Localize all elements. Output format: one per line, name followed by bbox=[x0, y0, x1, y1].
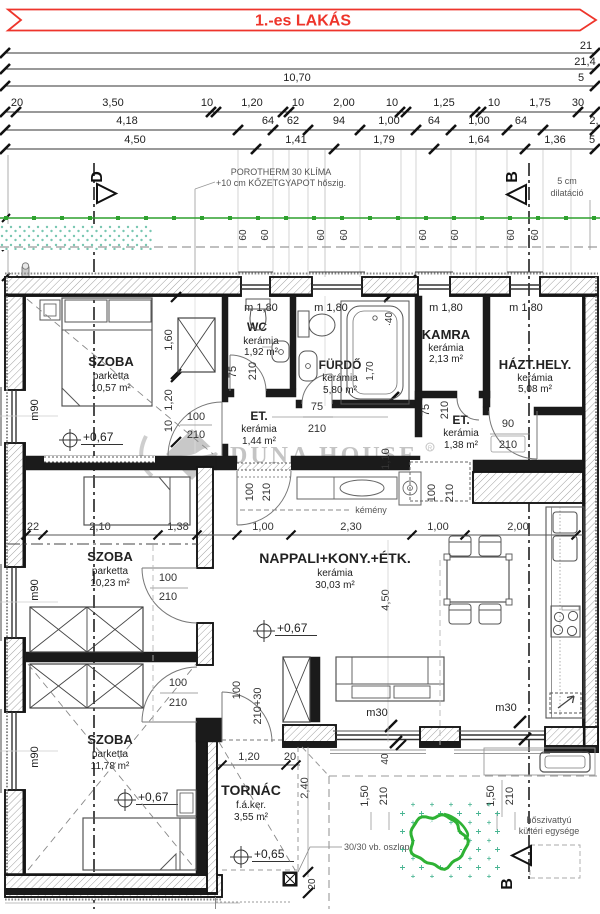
svg-text:75: 75 bbox=[311, 401, 323, 413]
svg-text:ET.: ET. bbox=[452, 413, 469, 427]
svg-text:100: 100 bbox=[244, 483, 256, 501]
svg-text:2,00: 2,00 bbox=[507, 521, 528, 533]
svg-text:210: 210 bbox=[499, 439, 517, 451]
svg-text:60: 60 bbox=[339, 229, 350, 241]
svg-text:f.á.ker.: f.á.ker. bbox=[236, 800, 266, 811]
svg-text:kerámia: kerámia bbox=[241, 424, 277, 435]
svg-text:1,20: 1,20 bbox=[238, 751, 259, 763]
svg-text:kémény: kémény bbox=[355, 505, 387, 515]
svg-text:1,41: 1,41 bbox=[285, 134, 306, 146]
svg-text:1,00: 1,00 bbox=[468, 115, 489, 127]
svg-text:hőszivattyú: hőszivattyú bbox=[526, 815, 571, 825]
svg-text:m90: m90 bbox=[29, 399, 41, 420]
svg-text:2,40: 2,40 bbox=[299, 777, 311, 798]
svg-text:1,00: 1,00 bbox=[427, 521, 448, 533]
svg-text:20: 20 bbox=[11, 97, 23, 109]
svg-text:parketta: parketta bbox=[92, 566, 129, 577]
svg-text:dilatáció: dilatáció bbox=[550, 188, 583, 198]
svg-text:20: 20 bbox=[307, 878, 318, 890]
svg-text:1,36: 1,36 bbox=[544, 134, 565, 146]
svg-text:4,50: 4,50 bbox=[124, 134, 145, 146]
svg-text:m 1,80: m 1,80 bbox=[509, 302, 543, 314]
svg-text:4,50: 4,50 bbox=[380, 589, 392, 610]
svg-text:2,: 2, bbox=[589, 115, 598, 127]
svg-text:+0,67: +0,67 bbox=[277, 621, 308, 635]
svg-text:210: 210 bbox=[444, 484, 456, 502]
svg-text:1,25: 1,25 bbox=[433, 97, 454, 109]
svg-text:FÜRDŐ: FÜRDŐ bbox=[319, 357, 362, 372]
svg-text:m30: m30 bbox=[495, 702, 516, 714]
svg-text:+0,67: +0,67 bbox=[83, 430, 114, 444]
svg-text:94: 94 bbox=[333, 115, 345, 127]
svg-text:5,08 m²: 5,08 m² bbox=[518, 384, 553, 395]
svg-text:30/30 vb. oszlop: 30/30 vb. oszlop bbox=[344, 842, 410, 852]
svg-text:210: 210 bbox=[439, 401, 451, 419]
svg-text:m90: m90 bbox=[29, 746, 41, 767]
svg-text:5: 5 bbox=[589, 134, 595, 146]
svg-text:+0,65: +0,65 bbox=[254, 847, 285, 861]
svg-text:R: R bbox=[428, 446, 433, 452]
svg-text:30: 30 bbox=[572, 97, 584, 109]
svg-text:210: 210 bbox=[159, 591, 177, 603]
svg-text:2,10: 2,10 bbox=[89, 521, 110, 533]
svg-text:HÁZT.HELY.: HÁZT.HELY. bbox=[499, 357, 571, 372]
svg-text:10,70: 10,70 bbox=[283, 72, 311, 84]
svg-text:B: B bbox=[499, 878, 516, 890]
svg-text:210+30: 210+30 bbox=[252, 687, 264, 724]
svg-text:1,20: 1,20 bbox=[163, 389, 175, 410]
svg-text:210: 210 bbox=[378, 787, 390, 805]
svg-text:64: 64 bbox=[428, 115, 440, 127]
svg-text:m 1,80: m 1,80 bbox=[429, 302, 463, 314]
svg-text:60: 60 bbox=[450, 229, 461, 241]
svg-text:60: 60 bbox=[238, 229, 249, 241]
svg-text:90: 90 bbox=[502, 418, 514, 430]
svg-text:m 1,80: m 1,80 bbox=[314, 302, 348, 314]
svg-text:5 cm: 5 cm bbox=[557, 176, 577, 186]
svg-text:D: D bbox=[89, 171, 106, 183]
svg-text:75: 75 bbox=[227, 366, 239, 378]
svg-text:1,75: 1,75 bbox=[529, 97, 550, 109]
svg-text:SZOBA: SZOBA bbox=[87, 732, 133, 747]
svg-text:kerámia: kerámia bbox=[517, 373, 553, 384]
svg-text:210: 210 bbox=[261, 483, 273, 501]
svg-text:40: 40 bbox=[380, 753, 391, 765]
svg-text:kerámia: kerámia bbox=[317, 568, 353, 579]
svg-text:210: 210 bbox=[308, 423, 326, 435]
svg-text:60: 60 bbox=[418, 229, 429, 241]
svg-text:60: 60 bbox=[260, 229, 271, 241]
svg-text:1,64: 1,64 bbox=[468, 134, 489, 146]
svg-text:10,23 m²: 10,23 m² bbox=[90, 578, 130, 589]
svg-text:210: 210 bbox=[169, 697, 187, 709]
svg-text:1,60: 1,60 bbox=[163, 329, 175, 350]
svg-text:1,38 m²: 1,38 m² bbox=[444, 440, 479, 451]
svg-text:1,38: 1,38 bbox=[167, 521, 188, 533]
svg-text:1,44 m²: 1,44 m² bbox=[242, 436, 277, 447]
svg-text:100: 100 bbox=[159, 572, 177, 584]
svg-text:4,18: 4,18 bbox=[116, 115, 137, 127]
svg-text:kültéri egysége: kültéri egysége bbox=[519, 826, 580, 836]
svg-text:kerámia: kerámia bbox=[428, 343, 464, 354]
svg-text:20: 20 bbox=[284, 751, 296, 763]
svg-text:5,80 m²: 5,80 m² bbox=[323, 385, 358, 396]
svg-text:2,13 m²: 2,13 m² bbox=[429, 354, 464, 365]
svg-text:2,00: 2,00 bbox=[333, 97, 354, 109]
svg-text:1.-es LAKÁS: 1.-es LAKÁS bbox=[255, 11, 351, 30]
svg-text:75: 75 bbox=[420, 404, 432, 416]
svg-text:21: 21 bbox=[580, 40, 592, 52]
svg-text:21,4: 21,4 bbox=[574, 56, 595, 68]
svg-text:1,92 m²: 1,92 m² bbox=[244, 347, 279, 358]
svg-text:100: 100 bbox=[426, 484, 438, 502]
svg-text:30,03 m²: 30,03 m² bbox=[315, 580, 355, 591]
svg-text:1,00: 1,00 bbox=[252, 521, 273, 533]
svg-text:3,50: 3,50 bbox=[102, 97, 123, 109]
svg-text:1,70: 1,70 bbox=[365, 361, 376, 381]
svg-text:2,30: 2,30 bbox=[340, 521, 361, 533]
svg-text:KAMRA: KAMRA bbox=[422, 327, 471, 342]
svg-text:60: 60 bbox=[316, 229, 327, 241]
svg-text:1,10: 1,10 bbox=[380, 448, 392, 469]
svg-text:10: 10 bbox=[488, 97, 500, 109]
svg-text:POROTHERM 30 KLÍMA: POROTHERM 30 KLÍMA bbox=[231, 167, 332, 177]
svg-text:64: 64 bbox=[515, 115, 527, 127]
svg-text:1,50: 1,50 bbox=[359, 785, 371, 806]
svg-text:210: 210 bbox=[504, 787, 516, 805]
svg-text:m 1,80: m 1,80 bbox=[244, 302, 278, 314]
svg-text:5: 5 bbox=[578, 72, 584, 84]
svg-text:62: 62 bbox=[287, 115, 299, 127]
svg-text:ET.: ET. bbox=[250, 409, 267, 423]
svg-text:64: 64 bbox=[262, 115, 274, 127]
svg-text:22: 22 bbox=[27, 521, 39, 533]
svg-text:m30: m30 bbox=[366, 707, 387, 719]
svg-text:60: 60 bbox=[506, 229, 517, 241]
svg-text:100: 100 bbox=[187, 411, 205, 423]
svg-text:10: 10 bbox=[292, 97, 304, 109]
svg-text:1,79: 1,79 bbox=[373, 134, 394, 146]
svg-text:+10 cm KŐZETGYAPOT hőszig.: +10 cm KŐZETGYAPOT hőszig. bbox=[216, 178, 346, 188]
svg-text:60: 60 bbox=[530, 229, 541, 241]
svg-text:10,57 m²: 10,57 m² bbox=[91, 383, 131, 394]
svg-text:100: 100 bbox=[169, 677, 187, 689]
svg-text:kerámia: kerámia bbox=[443, 428, 479, 439]
svg-text:kerámia: kerámia bbox=[243, 336, 279, 347]
svg-text:parketta: parketta bbox=[92, 749, 129, 760]
svg-text:210: 210 bbox=[187, 429, 205, 441]
svg-text:210: 210 bbox=[247, 362, 259, 380]
svg-text:10: 10 bbox=[201, 97, 213, 109]
svg-text:+0,67: +0,67 bbox=[138, 790, 169, 804]
svg-text:10: 10 bbox=[386, 97, 398, 109]
svg-text:10: 10 bbox=[163, 420, 175, 432]
svg-text:SZOBA: SZOBA bbox=[87, 549, 133, 564]
svg-text:100: 100 bbox=[231, 681, 243, 699]
svg-text:1,20: 1,20 bbox=[241, 97, 262, 109]
svg-text:m90: m90 bbox=[29, 579, 41, 600]
svg-text:B: B bbox=[504, 171, 521, 183]
svg-text:1,00: 1,00 bbox=[378, 115, 399, 127]
svg-text:11,78 m²: 11,78 m² bbox=[91, 761, 130, 772]
